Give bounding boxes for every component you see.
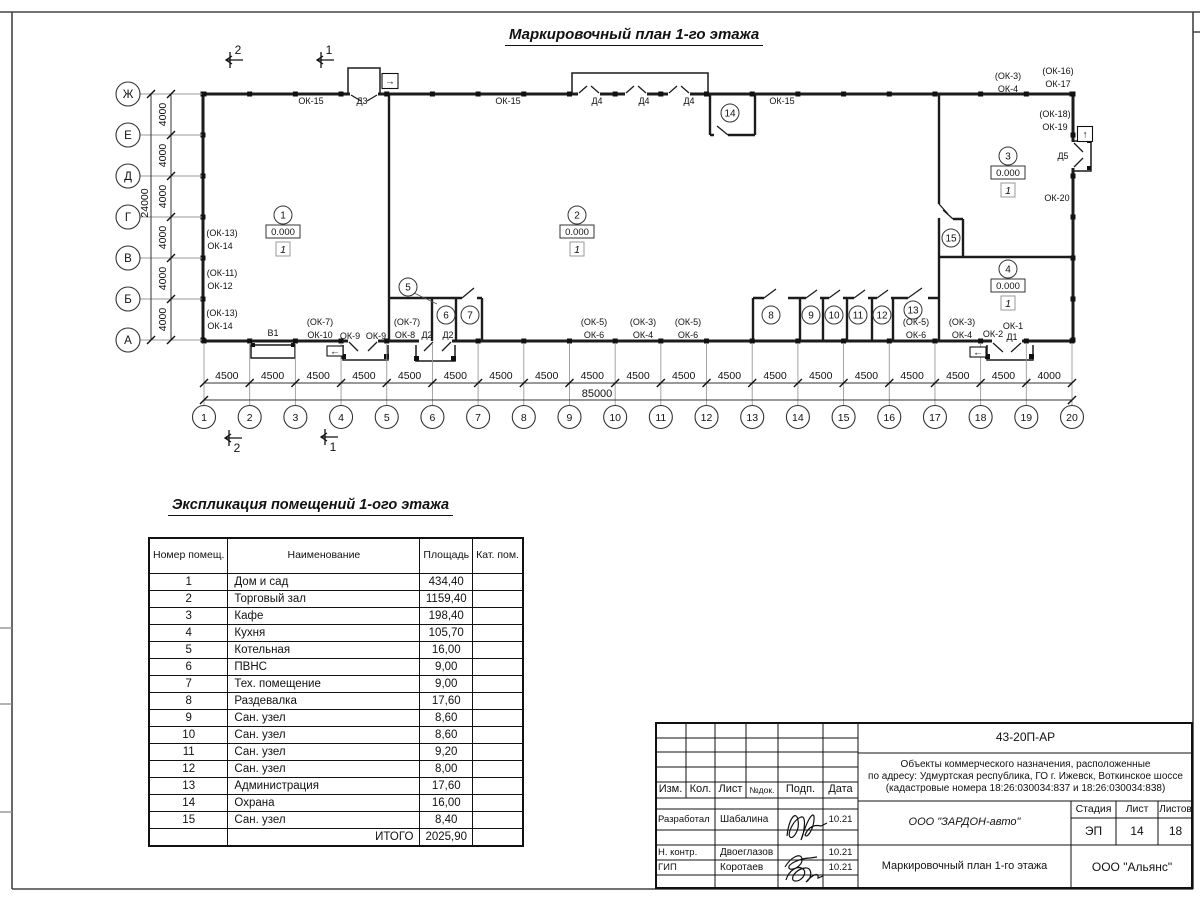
pier-square	[795, 339, 800, 344]
cell-room-name: Торговый зал	[228, 591, 420, 608]
cell-room-number: 13	[149, 778, 228, 795]
cell-room-area: 17,60	[420, 693, 473, 710]
cell-room-area: 16,00	[420, 642, 473, 659]
grid-column-number: 10	[609, 412, 621, 424]
pier-square	[887, 92, 892, 97]
cell-room-name: Сан. узел	[228, 710, 420, 727]
table-row: 7Тех. помещение9,00	[149, 676, 523, 693]
plan-label: ОК-9	[340, 331, 360, 341]
pier-square	[978, 92, 983, 97]
dim-label: 4000	[157, 226, 169, 250]
room-number: 11	[853, 311, 864, 322]
col-header-area: Площадь	[420, 538, 473, 574]
elevation-value: 0.000	[271, 227, 295, 238]
category-value: 1	[1005, 298, 1011, 310]
pier-square	[658, 92, 663, 97]
plan-label: ОК-10	[307, 330, 332, 340]
room-number: 2	[574, 211, 580, 222]
pier-square	[1071, 215, 1076, 220]
total-height-dim-label: 24000	[139, 188, 151, 217]
cell-room-area: 8,60	[420, 710, 473, 727]
plan-label: (ОК-7)	[394, 317, 420, 327]
plan-label: ОК-6	[678, 330, 698, 340]
dim-label: 4500	[352, 370, 376, 382]
table-row: 9Сан. узел8,60	[149, 710, 523, 727]
pier-square	[841, 92, 846, 97]
cell-total-label: ИТОГО	[228, 829, 420, 847]
dim-label: 4500	[809, 370, 833, 382]
stamp-sheets-value: 18	[1158, 818, 1193, 845]
pier-square	[795, 92, 800, 97]
cell-room-number: 10	[149, 727, 228, 744]
grid-row-letter: Г	[125, 212, 132, 224]
grid-column-number: 3	[292, 412, 298, 424]
cell-total-value: 2025,90	[420, 829, 473, 847]
cell-room-category	[473, 761, 523, 778]
dim-label: 4500	[626, 370, 650, 382]
cell-room-name: Сан. узел	[228, 727, 420, 744]
stamp-sheets-label: Листов	[1158, 801, 1193, 818]
plan-label: ОК-15	[769, 96, 794, 106]
entrance-arrow-icon: ←	[330, 347, 340, 358]
plan-label: ОК-6	[906, 330, 926, 340]
plan-label: ОК-1	[1003, 321, 1023, 331]
grid-row-letter: Ж	[123, 89, 134, 101]
room-number: 1	[280, 211, 286, 222]
stamp-col-data: Дата	[823, 782, 858, 798]
room-number: 15	[945, 234, 957, 245]
grid-column-number: 19	[1020, 412, 1032, 424]
cell-room-category	[473, 795, 523, 812]
table-row: 12Сан. узел8,00	[149, 761, 523, 778]
cell-room-area: 105,70	[420, 625, 473, 642]
stamp-col-list: Лист	[715, 782, 746, 798]
plan-label: ОК-17	[1045, 79, 1070, 89]
cell-room-area: 8,00	[420, 761, 473, 778]
cell-room-number: 2	[149, 591, 228, 608]
pier-square	[887, 339, 892, 344]
signature-icon	[785, 815, 827, 882]
pier-square	[841, 339, 846, 344]
explication-title: Экспликация помещений 1-ого этажа	[168, 497, 453, 516]
dim-label: 4500	[763, 370, 787, 382]
pier-square	[1071, 92, 1076, 97]
cell-room-area: 9,20	[420, 744, 473, 761]
room-number: 9	[808, 311, 814, 322]
cell-room-number: 11	[149, 744, 228, 761]
cell-empty	[149, 829, 228, 847]
pier-square	[247, 92, 252, 97]
pier-square	[339, 92, 344, 97]
pier-square	[567, 339, 572, 344]
plan-label: Д5	[1057, 151, 1068, 161]
section-mark-number: 1	[326, 43, 333, 57]
stamp-date-ncontrol: 10.21	[823, 845, 858, 860]
plan-label: (ОК-16)	[1042, 66, 1073, 76]
cell-room-name: Сан. узел	[228, 812, 420, 829]
table-header-row: Номер помещ. Наименование Площадь Кат. п…	[149, 538, 523, 574]
dim-label: 4500	[398, 370, 422, 382]
title-block: 43-20П-АР Объекты коммерческого назначен…	[655, 722, 1193, 889]
room-number: 3	[1005, 152, 1011, 163]
stamp-col-izm: Изм.	[655, 782, 686, 798]
pier-square	[1071, 297, 1076, 302]
grid-column-number: 16	[883, 412, 895, 424]
grid-column-number: 4	[338, 412, 344, 424]
plan-label: (ОК-3)	[630, 317, 656, 327]
plan-label: (ОК-5)	[581, 317, 607, 327]
pier-square	[932, 339, 937, 344]
dim-label: 4000	[1037, 370, 1061, 382]
plan-label: В1	[267, 328, 278, 338]
cell-room-category	[473, 676, 523, 693]
grid-column-number: 17	[929, 412, 941, 424]
elevation-value: 0.000	[996, 281, 1020, 292]
cell-room-name: Сан. узел	[228, 744, 420, 761]
explication-table: Номер помещ. Наименование Площадь Кат. п…	[148, 537, 524, 847]
table-row: 15Сан. узел8,40	[149, 812, 523, 829]
stamp-drawing-title: Маркировочный план 1-го этажа	[858, 845, 1071, 889]
table-row: 6ПВНС9,00	[149, 659, 523, 676]
stamp-name-ncontrol: Двоеглазов	[717, 845, 780, 860]
dim-label: 4000	[157, 103, 169, 127]
pier-square	[476, 92, 481, 97]
cell-room-category	[473, 574, 523, 591]
cell-room-category	[473, 625, 523, 642]
dim-label: 4500	[535, 370, 559, 382]
cell-room-category	[473, 608, 523, 625]
wall-pier-squares	[201, 92, 1076, 344]
cell-room-number: 6	[149, 659, 228, 676]
stamp-date-gip: 10.21	[823, 860, 858, 875]
cell-room-name: Кухня	[228, 625, 420, 642]
room-number: 5	[405, 283, 411, 294]
cell-room-name: ПВНС	[228, 659, 420, 676]
table-row: 13Администрация17,60	[149, 778, 523, 795]
cell-room-number: 4	[149, 625, 228, 642]
pier-square	[1071, 174, 1076, 179]
plan-label: (ОК-3)	[949, 317, 975, 327]
plan-label: ОК-4	[633, 330, 653, 340]
elevation-value: 0.000	[996, 168, 1020, 179]
cell-room-name: Раздевалка	[228, 693, 420, 710]
cell-room-category	[473, 693, 523, 710]
plan-label: ОК-14	[207, 241, 232, 251]
plan-label: ОК-15	[298, 96, 323, 106]
cell-room-name: Администрация	[228, 778, 420, 795]
total-width-dim-label: 85000	[582, 388, 613, 400]
stamp-project-description: Объекты коммерческого назначения, распол…	[858, 753, 1193, 801]
stamp-sheet-label: Лист	[1116, 801, 1158, 818]
pier-square	[1071, 133, 1076, 138]
section-mark-number: 2	[234, 441, 241, 455]
grid-row-letter: А	[124, 335, 132, 347]
room-number: 6	[443, 311, 449, 322]
plan-label: Д4	[683, 96, 694, 106]
plan-label: Д2	[421, 330, 432, 340]
cell-room-category	[473, 710, 523, 727]
table-row: 8Раздевалка17,60	[149, 693, 523, 710]
cell-room-category	[473, 727, 523, 744]
pier-square	[476, 339, 481, 344]
entrance-arrow-icon: →	[385, 77, 395, 88]
pier-square	[750, 339, 755, 344]
stamp-role-developer: Разработал	[655, 809, 718, 830]
grid-row-letter: Д	[124, 171, 132, 183]
grid-column-number: 6	[429, 412, 435, 424]
stamp-stage-value: ЭП	[1071, 818, 1116, 845]
cell-room-area: 8,60	[420, 727, 473, 744]
stamp-name-gip: Коротаев	[717, 860, 780, 875]
table-row: 1Дом и сад434,40	[149, 574, 523, 591]
section-mark-number: 2	[235, 43, 242, 57]
pier-square	[704, 339, 709, 344]
cell-room-area: 8,40	[420, 812, 473, 829]
cell-room-number: 5	[149, 642, 228, 659]
plan-label: (ОК-13)	[206, 228, 237, 238]
cell-room-name: Тех. помещение	[228, 676, 420, 693]
cell-room-name: Дом и сад	[228, 574, 420, 591]
cell-room-area: 9,00	[420, 676, 473, 693]
cell-room-area: 1159,40	[420, 591, 473, 608]
plan-label: ОК-9	[366, 331, 386, 341]
pier-square	[293, 92, 298, 97]
dim-label: 4500	[672, 370, 696, 382]
stamp-col-podp: Подп.	[778, 782, 823, 798]
plan-label: Д2	[442, 330, 453, 340]
plan-label: (ОК-5)	[675, 317, 701, 327]
plan-label: Д3	[356, 96, 367, 106]
interior-walls	[389, 94, 1073, 341]
pier-square	[613, 339, 618, 344]
grid-column-number: 7	[475, 412, 481, 424]
table-row: 5Котельная16,00	[149, 642, 523, 659]
table-row: 10Сан. узел8,60	[149, 727, 523, 744]
plan-label: ОК-6	[584, 330, 604, 340]
dim-label: 4000	[157, 144, 169, 168]
stamp-address-line3: (кадастровые номера 18:26:030034:837 и 1…	[886, 783, 1166, 795]
pier-square	[521, 339, 526, 344]
pier-square	[567, 92, 572, 97]
section-mark-number: 1	[330, 440, 337, 454]
fold-marks	[0, 628, 12, 812]
pier-square	[658, 339, 663, 344]
grid-column-number: 5	[384, 412, 390, 424]
cell-room-area: 17,60	[420, 778, 473, 795]
dim-label: 4500	[992, 370, 1016, 382]
stamp-col-ndok: №док.	[746, 782, 778, 798]
cell-room-number: 7	[149, 676, 228, 693]
category-value: 1	[1005, 185, 1011, 197]
cell-room-number: 1	[149, 574, 228, 591]
stamp-role-ncontrol: Н. контр.	[655, 845, 718, 860]
pier-square	[750, 92, 755, 97]
pier-square	[613, 92, 618, 97]
grid-column-number: 8	[521, 412, 527, 424]
cell-room-category	[473, 642, 523, 659]
category-value: 1	[280, 244, 286, 256]
pier-square	[1071, 256, 1076, 261]
door-jamb-squares	[251, 139, 1091, 361]
plan-label: ОК-20	[1044, 193, 1069, 203]
plan-window-door-labels: ОК-15Д3ОК-15Д4Д4Д4ОК-15(ОК-3)ОК-4(ОК-16)…	[206, 66, 1073, 342]
entrance-arrow-icon: ←	[973, 348, 983, 359]
cell-room-area: 198,40	[420, 608, 473, 625]
cell-room-category	[473, 812, 523, 829]
door-leaves	[349, 86, 1083, 352]
grid-column-number: 20	[1066, 412, 1078, 424]
grid-row-letter: Б	[124, 294, 132, 306]
pier-square	[384, 92, 389, 97]
stamp-company: ООО "ЗАРДОН-авто"	[858, 801, 1071, 845]
room-number: 10	[828, 311, 840, 322]
grid-row-letter: Е	[124, 130, 132, 142]
plan-label: (ОК-3)	[995, 71, 1021, 81]
dim-label: 4500	[307, 370, 331, 382]
cell-room-number: 9	[149, 710, 228, 727]
plan-label: ОК-4	[952, 330, 972, 340]
pier-square	[247, 339, 252, 344]
plan-label: (ОК-13)	[206, 308, 237, 318]
stamp-date-developer: 10.21	[823, 809, 858, 830]
pier-square	[293, 339, 298, 344]
cell-room-name: Котельная	[228, 642, 420, 659]
cell-room-area: 434,40	[420, 574, 473, 591]
plan-label: ОК-2	[983, 329, 1003, 339]
room-number: 8	[768, 311, 774, 322]
stamp-col-kol: Кол.	[686, 782, 715, 798]
grid-column-number: 11	[655, 412, 666, 424]
cell-empty	[473, 829, 523, 847]
cell-room-name: Сан. узел	[228, 761, 420, 778]
cell-room-name: Кафе	[228, 608, 420, 625]
pier-square	[521, 92, 526, 97]
room-number: 4	[1005, 265, 1011, 276]
cell-room-category	[473, 744, 523, 761]
cell-room-category	[473, 778, 523, 795]
plan-label: ОК-12	[207, 281, 232, 291]
table-row: 11Сан. узел9,20	[149, 744, 523, 761]
grid-column-number: 13	[746, 412, 758, 424]
stamp-sheet-value: 14	[1116, 818, 1158, 845]
plan-label: (ОК-18)	[1039, 109, 1070, 119]
col-header-cat: Кат. пом.	[473, 538, 523, 574]
cell-room-area: 9,00	[420, 659, 473, 676]
pier-square	[932, 92, 937, 97]
table-row: 4Кухня105,70	[149, 625, 523, 642]
table-row: 2Торговый зал1159,40	[149, 591, 523, 608]
dim-label: 4500	[489, 370, 513, 382]
col-header-number: Номер помещ.	[149, 538, 228, 574]
grid-column-number: 18	[975, 412, 987, 424]
plan-label: ОК-14	[207, 321, 232, 331]
dim-label: 4500	[261, 370, 285, 382]
grid-column-number: 1	[201, 412, 207, 424]
grid-column-number: 15	[838, 412, 850, 424]
dim-label: 4500	[444, 370, 468, 382]
col-header-name: Наименование	[228, 538, 420, 574]
plan-label: ОК-4	[998, 84, 1018, 94]
dim-label: 4500	[855, 370, 879, 382]
stamp-name-developer: Шабалина	[717, 809, 780, 830]
pier-square	[1024, 339, 1029, 344]
entrance-arrow-icon: ↑	[1083, 130, 1088, 141]
stamp-address-line1: Объекты коммерческого назначения, распол…	[901, 759, 1151, 771]
table-total-row: ИТОГО2025,90	[149, 829, 523, 847]
plan-label: Д4	[638, 96, 649, 106]
cell-room-number: 8	[149, 693, 228, 710]
page-title: Маркировочный план 1-го этажа	[505, 26, 763, 46]
grid-column-number: 14	[792, 412, 804, 424]
dim-label: 4000	[157, 185, 169, 209]
dim-label: 4500	[581, 370, 605, 382]
pier-square	[1024, 92, 1029, 97]
cell-room-number: 3	[149, 608, 228, 625]
cell-room-name: Охрана	[228, 795, 420, 812]
cell-room-area: 16,00	[420, 795, 473, 812]
plan-label: Д4	[591, 96, 602, 106]
grid-column-number: 9	[567, 412, 573, 424]
plan-label: (ОК-11)	[207, 268, 238, 278]
room-number: 14	[724, 109, 736, 120]
room-number: 7	[467, 311, 473, 322]
table-row: 14Охрана16,00	[149, 795, 523, 812]
cell-room-category	[473, 659, 523, 676]
pier-square	[430, 92, 435, 97]
cell-room-number: 14	[149, 795, 228, 812]
room-number: 13	[907, 306, 919, 317]
stamp-role-gip: ГИП	[655, 860, 718, 875]
outer-walls	[203, 93, 1073, 343]
table-row: 3Кафе198,40	[149, 608, 523, 625]
pier-square	[1071, 338, 1076, 343]
cell-room-number: 15	[149, 812, 228, 829]
elevation-value: 0.000	[565, 227, 589, 238]
dim-label: 4000	[157, 267, 169, 291]
dim-label: 4500	[215, 370, 239, 382]
cell-room-number: 12	[149, 761, 228, 778]
plan-label: ОК-19	[1042, 122, 1067, 132]
plan-label: (ОК-7)	[307, 317, 333, 327]
dim-label: 4500	[718, 370, 742, 382]
grid-column-number: 12	[701, 412, 713, 424]
stamp-doc-code: 43-20П-АР	[858, 722, 1193, 753]
stamp-address-line2: по адресу: Удмуртская республика, ГО г. …	[868, 771, 1183, 783]
dim-label: 4500	[946, 370, 970, 382]
room-number: 12	[876, 311, 888, 322]
plan-label: ОК-15	[495, 96, 520, 106]
stamp-stage-label: Стадия	[1071, 801, 1116, 818]
grid-column-number: 2	[247, 412, 253, 424]
room-markers: 10.000120.000130.000140.0001567891011121…	[266, 104, 1025, 324]
dim-label: 4500	[900, 370, 924, 382]
category-value: 1	[574, 244, 580, 256]
plan-label: ОК-8	[395, 330, 415, 340]
cell-room-category	[473, 591, 523, 608]
pier-square	[978, 339, 983, 344]
dim-label: 4000	[157, 308, 169, 332]
plan-label: Д1	[1006, 332, 1017, 342]
pier-square	[704, 92, 709, 97]
drawing-sheet: { "doc_title": "Маркировочный план 1-го …	[0, 0, 1200, 900]
grid-row-letter: В	[124, 253, 132, 265]
stamp-org: ООО "Альянс"	[1071, 845, 1193, 889]
